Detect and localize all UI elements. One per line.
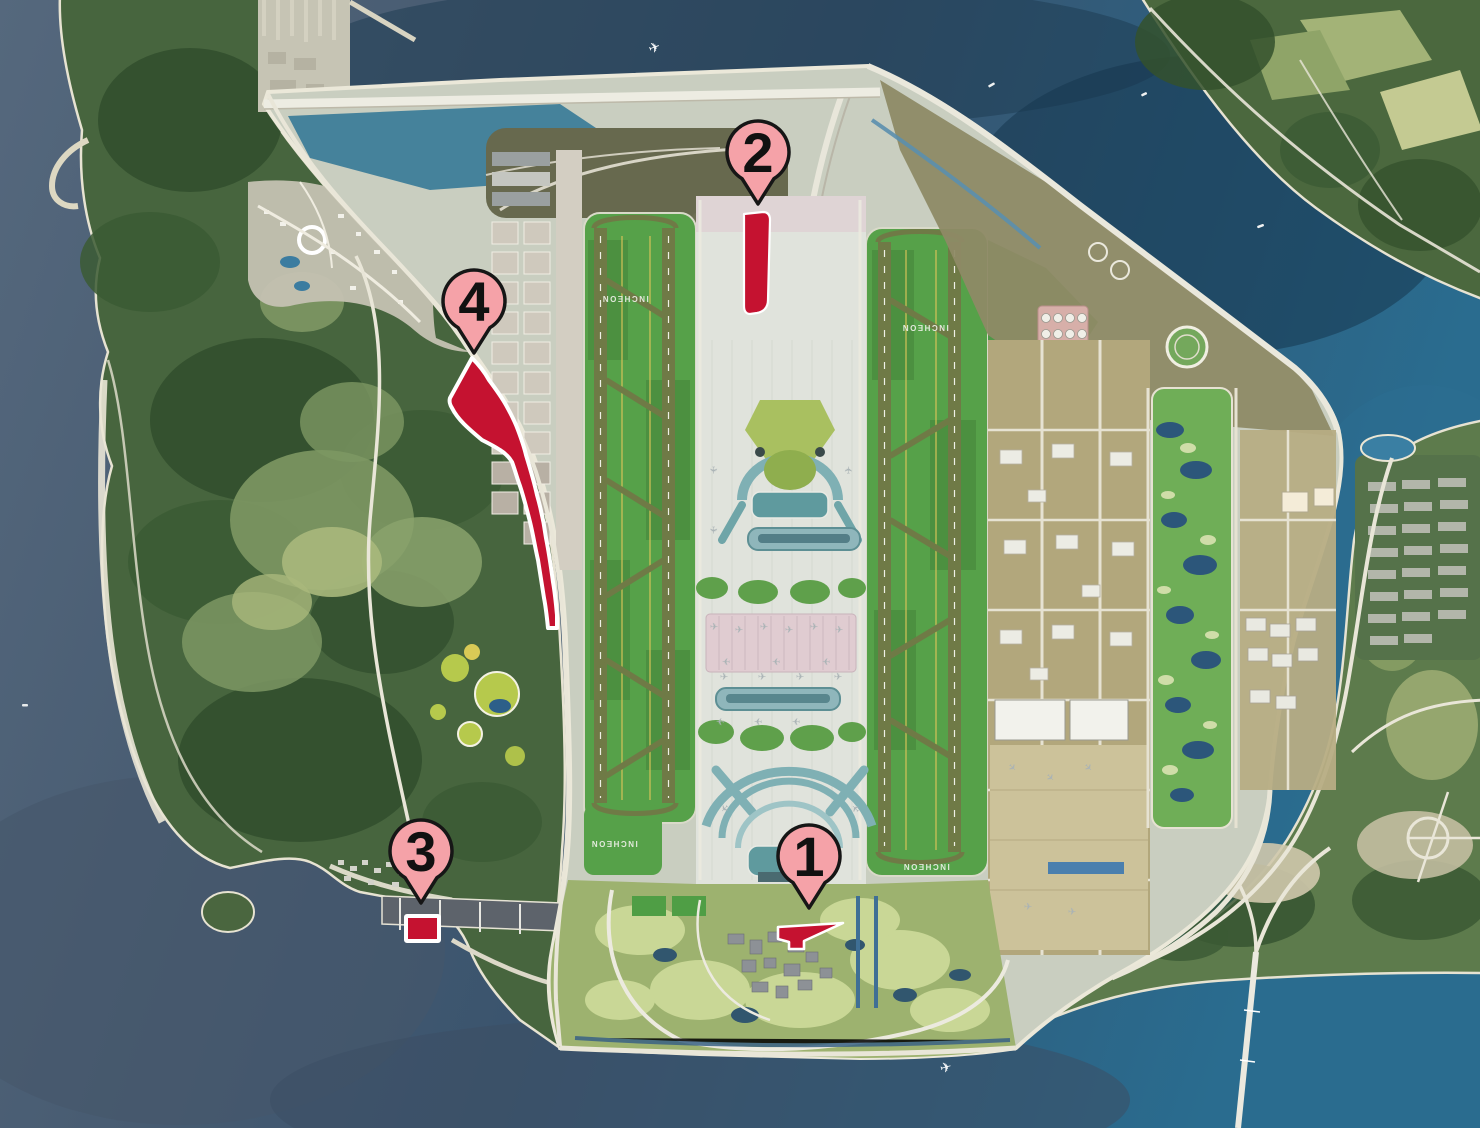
boat-icon (22, 704, 28, 707)
logistics-area-east (988, 340, 1150, 955)
development-east (1240, 430, 1336, 790)
airplane-icon: ✈ (810, 622, 818, 633)
airplane-icon: ✈ (796, 672, 804, 683)
airplane-icon: ✈ (792, 715, 800, 726)
airplane-icon: ✈ (707, 466, 718, 474)
airplane-icon: ✈ (785, 625, 793, 636)
airplane-icon: ✈ (707, 526, 718, 534)
airplane-icon: ✈ (735, 625, 743, 636)
airplane-icon: ✈ (1024, 902, 1032, 913)
runway-label: INCHEON (601, 294, 648, 303)
airplane-icon: ✈ (754, 715, 762, 726)
airplane-icon: ✈ (758, 672, 766, 683)
satellite-map-stage: INCHEON INCHEON INCHEON INCHEON (0, 0, 1480, 1128)
pond (1361, 435, 1415, 461)
small-island (202, 892, 254, 932)
marker-1-label: 1 (793, 825, 824, 888)
airport-satellite-map: INCHEON INCHEON INCHEON INCHEON (0, 0, 1480, 1128)
airplane-icon: ✈ (822, 655, 830, 666)
highlight-zone-2[interactable] (744, 212, 770, 314)
highlight-zone-3[interactable] (406, 916, 439, 941)
marker-4-label: 4 (458, 270, 489, 333)
circuit-track (1167, 327, 1207, 367)
airplane-icon: ✈ (720, 672, 728, 683)
airplane-icon: ✈ (835, 625, 843, 636)
runway-label: INCHEON (902, 862, 949, 871)
golf-area-south (551, 880, 1016, 1058)
airplane-icon: ✈ (772, 655, 780, 666)
airplane-icon: ✈ (716, 715, 724, 726)
marker-3-label: 3 (405, 820, 436, 883)
airplane-icon: ✈ (844, 466, 855, 474)
runway-label: INCHEON (590, 839, 637, 848)
central-apron (696, 196, 872, 884)
hangar (1070, 700, 1128, 740)
runway-label: INCHEON (901, 323, 948, 332)
airplane-icon: ✈ (834, 672, 842, 683)
west-runways: INCHEON INCHEON (584, 213, 696, 875)
airplane-icon: ✈ (1068, 907, 1076, 918)
marker-2-label: 2 (742, 121, 773, 184)
airplane-icon: ✈ (722, 655, 730, 666)
airplane-icon: ✈ (760, 622, 768, 633)
airplane-icon: ✈ (710, 622, 718, 633)
golf-strip-east (1148, 388, 1236, 828)
hangar (995, 700, 1065, 740)
